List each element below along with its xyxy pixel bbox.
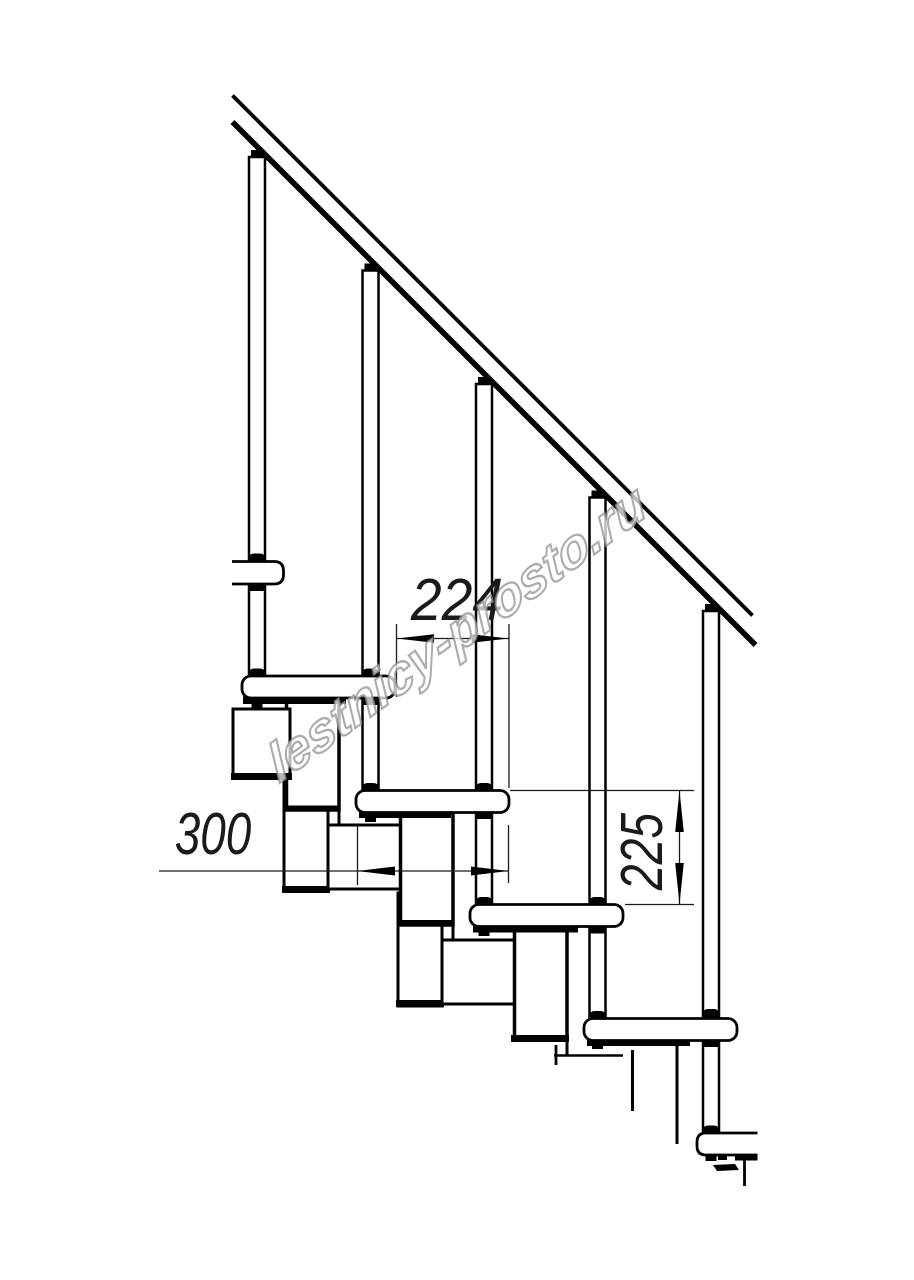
svg-text:225: 225 xyxy=(610,813,676,892)
svg-text:300: 300 xyxy=(175,801,252,867)
